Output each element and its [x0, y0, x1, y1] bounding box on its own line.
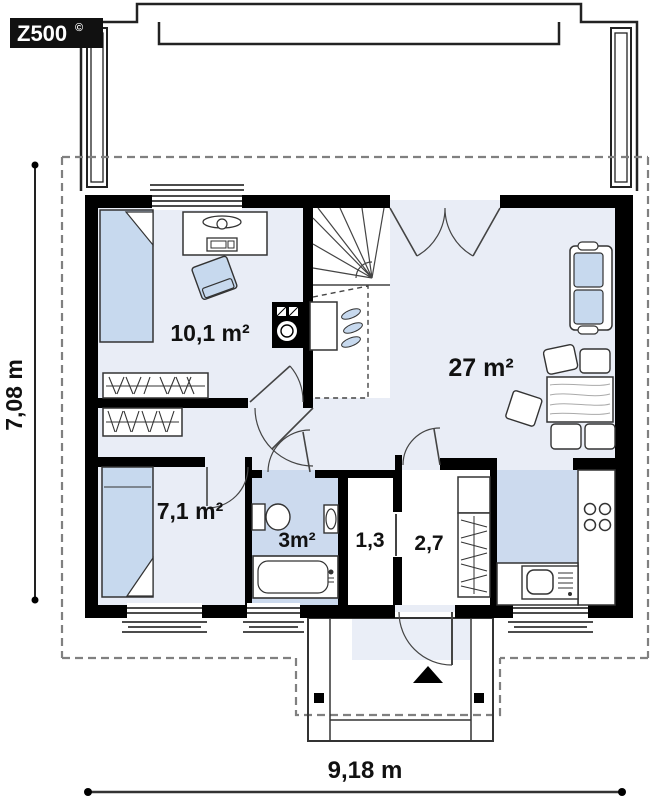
kitchen-floor [497, 470, 578, 563]
wall-bath-top-right [315, 470, 338, 478]
window-bedroom2 [122, 603, 207, 632]
porch-post-left [314, 693, 324, 703]
wall-bedroom1-hall [85, 398, 248, 408]
porch-post-right [474, 693, 484, 703]
kitchen-sink [522, 566, 578, 599]
label-width-dimension: 9,18 m [328, 757, 403, 784]
label-depth-dimension: 7,08 m [1, 359, 27, 431]
entrance-arrow-icon [413, 666, 443, 683]
label-hall-area: 2,7 [414, 532, 443, 555]
label-bedroom2-area: 7,1 m² [157, 498, 224, 524]
wall-closet-hall-lower [393, 557, 402, 605]
wall-bedroom2-hall [85, 457, 205, 467]
logo-copyright-icon: © [75, 22, 83, 34]
chimney-round-flue [277, 321, 297, 341]
terrace-pillar-right [611, 28, 631, 187]
window-bathroom [243, 603, 304, 632]
dimension-width: 9,18 m [84, 757, 626, 796]
logo-text: Z500 [17, 21, 67, 46]
toilet-bowl [266, 504, 290, 530]
window-kitchen [508, 603, 593, 632]
fireplace-insert [310, 302, 337, 350]
bedroom2-furniture [102, 467, 153, 597]
dining-table [547, 377, 613, 422]
wall-bath-closet [338, 470, 348, 605]
kitchen-counter-right [578, 470, 615, 605]
window-bedroom1 [150, 185, 244, 210]
label-living-area: 27 m² [448, 354, 513, 382]
bathtub [253, 556, 338, 598]
wall-closet-top [348, 470, 395, 478]
wall-bath-top-left [252, 470, 262, 478]
roof-edge [81, 4, 637, 191]
toilet-tank [252, 504, 265, 530]
wall-niche-kitchen [490, 467, 497, 605]
wardrobe-bedroom1 [103, 373, 208, 398]
brand-logo: Z500 © [10, 18, 103, 48]
dimension-depth: 7,08 m [1, 162, 39, 604]
wall-hall-corner [395, 455, 402, 470]
wall-hall-living [440, 458, 497, 470]
label-closet-area: 1,3 [355, 529, 384, 552]
floor-plan-page: 10,1 m² 27 m² 7,1 m² 3m² 1,3 2,7 7,08 m … [0, 0, 655, 799]
label-bathroom-area: 3m² [278, 529, 315, 552]
floor-plan-drawing: 10,1 m² 27 m² 7,1 m² 3m² 1,3 2,7 7,08 m … [0, 0, 655, 799]
niche-cabinet [458, 477, 490, 513]
label-bedroom1-area: 10,1 m² [170, 320, 250, 346]
terrace-roof-outline [81, 4, 637, 191]
entry-niche [458, 477, 490, 597]
wall-kitchen-living [573, 458, 615, 470]
sofa [570, 242, 612, 334]
bathtub-faucet [329, 570, 334, 575]
entrance-porch [308, 618, 493, 741]
wall-closet-hall-upper [393, 470, 402, 512]
wardrobe-hall [103, 408, 182, 436]
terrace-pillar-left [87, 28, 107, 187]
